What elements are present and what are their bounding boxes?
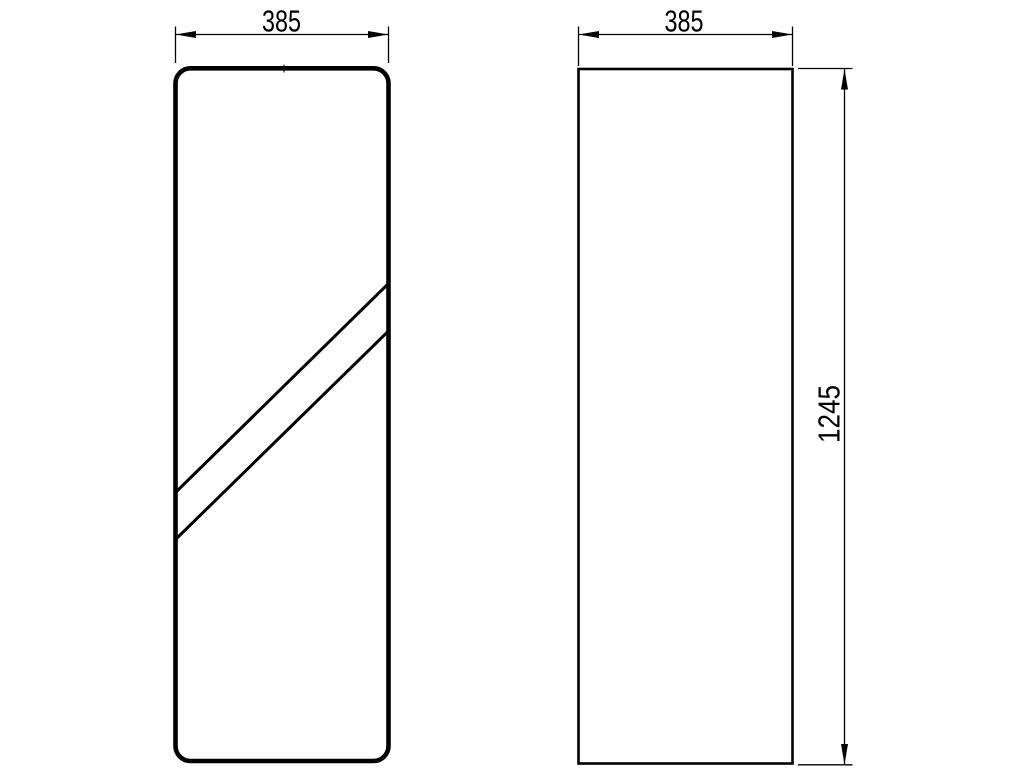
- side-height-dimension: 1245: [798, 69, 853, 765]
- side-view: [579, 69, 793, 764]
- arrowhead-down-icon: [841, 744, 848, 765]
- technical-drawing-canvas: 385 385 1245: [0, 0, 1024, 768]
- arrowhead-right-icon: [368, 31, 389, 38]
- arrowhead-left-icon: [176, 31, 197, 38]
- panel-dimension-drawing: 385 385 1245: [0, 0, 1024, 768]
- arrowhead-left-icon: [579, 31, 600, 38]
- arrowhead-up-icon: [841, 69, 848, 90]
- front-width-dimension: 385: [176, 4, 389, 64]
- side-width-dimension-label: 385: [665, 4, 704, 39]
- side-height-dimension-label: 1245: [812, 385, 847, 443]
- front-width-dimension-label: 385: [262, 4, 301, 39]
- side-width-dimension: 385: [579, 4, 793, 67]
- arrowhead-right-icon: [772, 31, 793, 38]
- front-view-outline: [176, 68, 389, 761]
- side-view-outline: [579, 69, 793, 764]
- front-view: [176, 65, 390, 762]
